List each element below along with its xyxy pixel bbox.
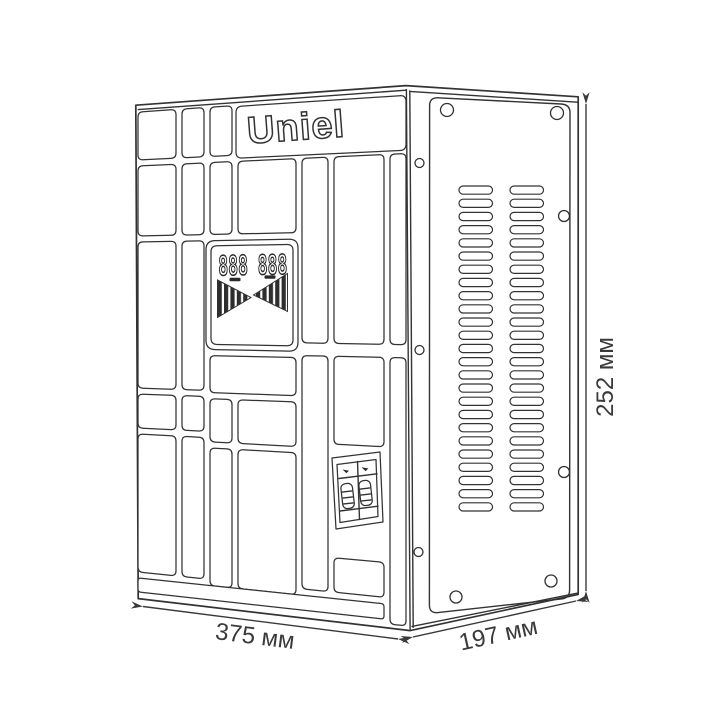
vent-slot — [459, 278, 493, 286]
vent-slot — [459, 226, 493, 234]
vent-slot — [510, 199, 544, 207]
front-panel — [182, 396, 204, 431]
screw-hole — [415, 346, 424, 355]
vent-slot — [459, 212, 493, 220]
front-panel — [390, 154, 406, 345]
vent-slot — [459, 199, 493, 207]
vent-slot — [510, 252, 544, 260]
screw-hole — [415, 159, 424, 168]
vent-slot — [459, 318, 493, 326]
screw-hole — [551, 107, 564, 120]
vent-slot — [459, 384, 493, 392]
vent-slot — [459, 305, 493, 313]
breaker-lever-right — [358, 480, 372, 506]
vent-slot — [510, 226, 544, 234]
vent-slot — [510, 344, 544, 352]
height-dimension-label: 252 мм — [592, 337, 619, 417]
line-drawing-svg: Uniel 888 888 375 мм 197 мм 252 мм — [0, 0, 720, 720]
vent-slot — [510, 490, 544, 498]
display-digits: 888 888 — [218, 250, 288, 282]
vent-slot — [459, 265, 493, 273]
ventilation-slots — [459, 186, 544, 511]
vent-slot — [510, 318, 544, 326]
vent-slot — [459, 371, 493, 379]
vent-slot — [510, 239, 544, 247]
vent-slot — [510, 278, 544, 286]
vent-slot — [459, 450, 493, 458]
vent-slot — [459, 463, 493, 471]
depth-dimension-label: 197 мм — [457, 613, 541, 657]
front-panel — [138, 434, 176, 575]
vent-slot — [459, 344, 493, 352]
vent-slot — [510, 410, 544, 418]
vent-slot — [459, 424, 493, 432]
vent-slot — [510, 463, 544, 471]
brand-logo-text: Uniel — [246, 103, 347, 152]
front-panel — [334, 155, 384, 345]
front-panel — [138, 394, 176, 429]
vent-slot — [459, 476, 493, 484]
vent-slot — [510, 305, 544, 313]
side-vent-cover — [414, 98, 570, 613]
vent-slot — [510, 265, 544, 273]
dimension-height: 252 мм — [586, 104, 619, 591]
screw-holes — [414, 104, 570, 604]
corner-edge — [406, 90, 410, 630]
front-panel — [138, 110, 176, 160]
front-panel — [182, 108, 204, 158]
corner-edge-inner — [410, 91, 413, 627]
vent-slot — [510, 397, 544, 405]
front-panel — [182, 436, 204, 578]
screw-hole — [545, 575, 557, 587]
screw-hole — [414, 548, 423, 557]
front-panel — [210, 448, 232, 587]
product-illustration: Uniel 888 888 375 мм 197 мм 252 мм — [0, 0, 720, 720]
front-panel — [182, 163, 204, 235]
vent-slot — [459, 437, 493, 445]
vent-slot — [510, 371, 544, 379]
front-panel — [138, 241, 176, 389]
vent-slot — [459, 239, 493, 247]
front-panel — [238, 450, 296, 594]
front-panel — [210, 356, 296, 396]
front-panel — [210, 162, 232, 235]
front-panel — [238, 159, 296, 234]
front-panel — [182, 241, 204, 390]
width-dimension-label: 375 мм — [214, 618, 296, 655]
vent-slot — [459, 397, 493, 405]
vent-slot — [459, 186, 493, 194]
front-panel — [334, 356, 384, 446]
vent-slot — [510, 437, 544, 445]
front-panel — [334, 558, 384, 597]
vent-slot — [510, 450, 544, 458]
vent-slot — [510, 424, 544, 432]
front-panels — [138, 96, 406, 626]
side-cover-outline — [429, 98, 570, 613]
front-panel — [302, 356, 328, 591]
vent-slot — [459, 490, 493, 498]
front-panel — [138, 164, 176, 235]
vent-slot — [459, 410, 493, 418]
screw-hole — [559, 467, 570, 478]
front-panel — [210, 106, 232, 156]
display-minus-left — [230, 278, 241, 281]
display-minus-right — [265, 275, 276, 278]
vent-slot — [459, 358, 493, 366]
vent-slot — [510, 331, 544, 339]
vent-slot — [510, 186, 544, 194]
vent-slot — [459, 503, 493, 511]
screw-hole — [559, 211, 570, 222]
vent-slot — [510, 358, 544, 366]
vent-slot — [459, 252, 493, 260]
front-panel — [238, 400, 296, 446]
screw-hole — [450, 591, 462, 603]
vent-slot — [459, 292, 493, 300]
vent-slot — [510, 503, 544, 511]
vent-slot — [510, 476, 544, 484]
vent-slot — [510, 212, 544, 220]
front-panel — [302, 157, 328, 343]
vent-slot — [510, 292, 544, 300]
vent-slot — [459, 331, 493, 339]
vent-slot — [510, 384, 544, 392]
circuit-breaker — [332, 452, 383, 529]
breaker-lever-left — [340, 483, 354, 509]
front-panel — [390, 358, 406, 626]
screw-hole — [441, 104, 454, 117]
front-panel — [210, 399, 232, 443]
